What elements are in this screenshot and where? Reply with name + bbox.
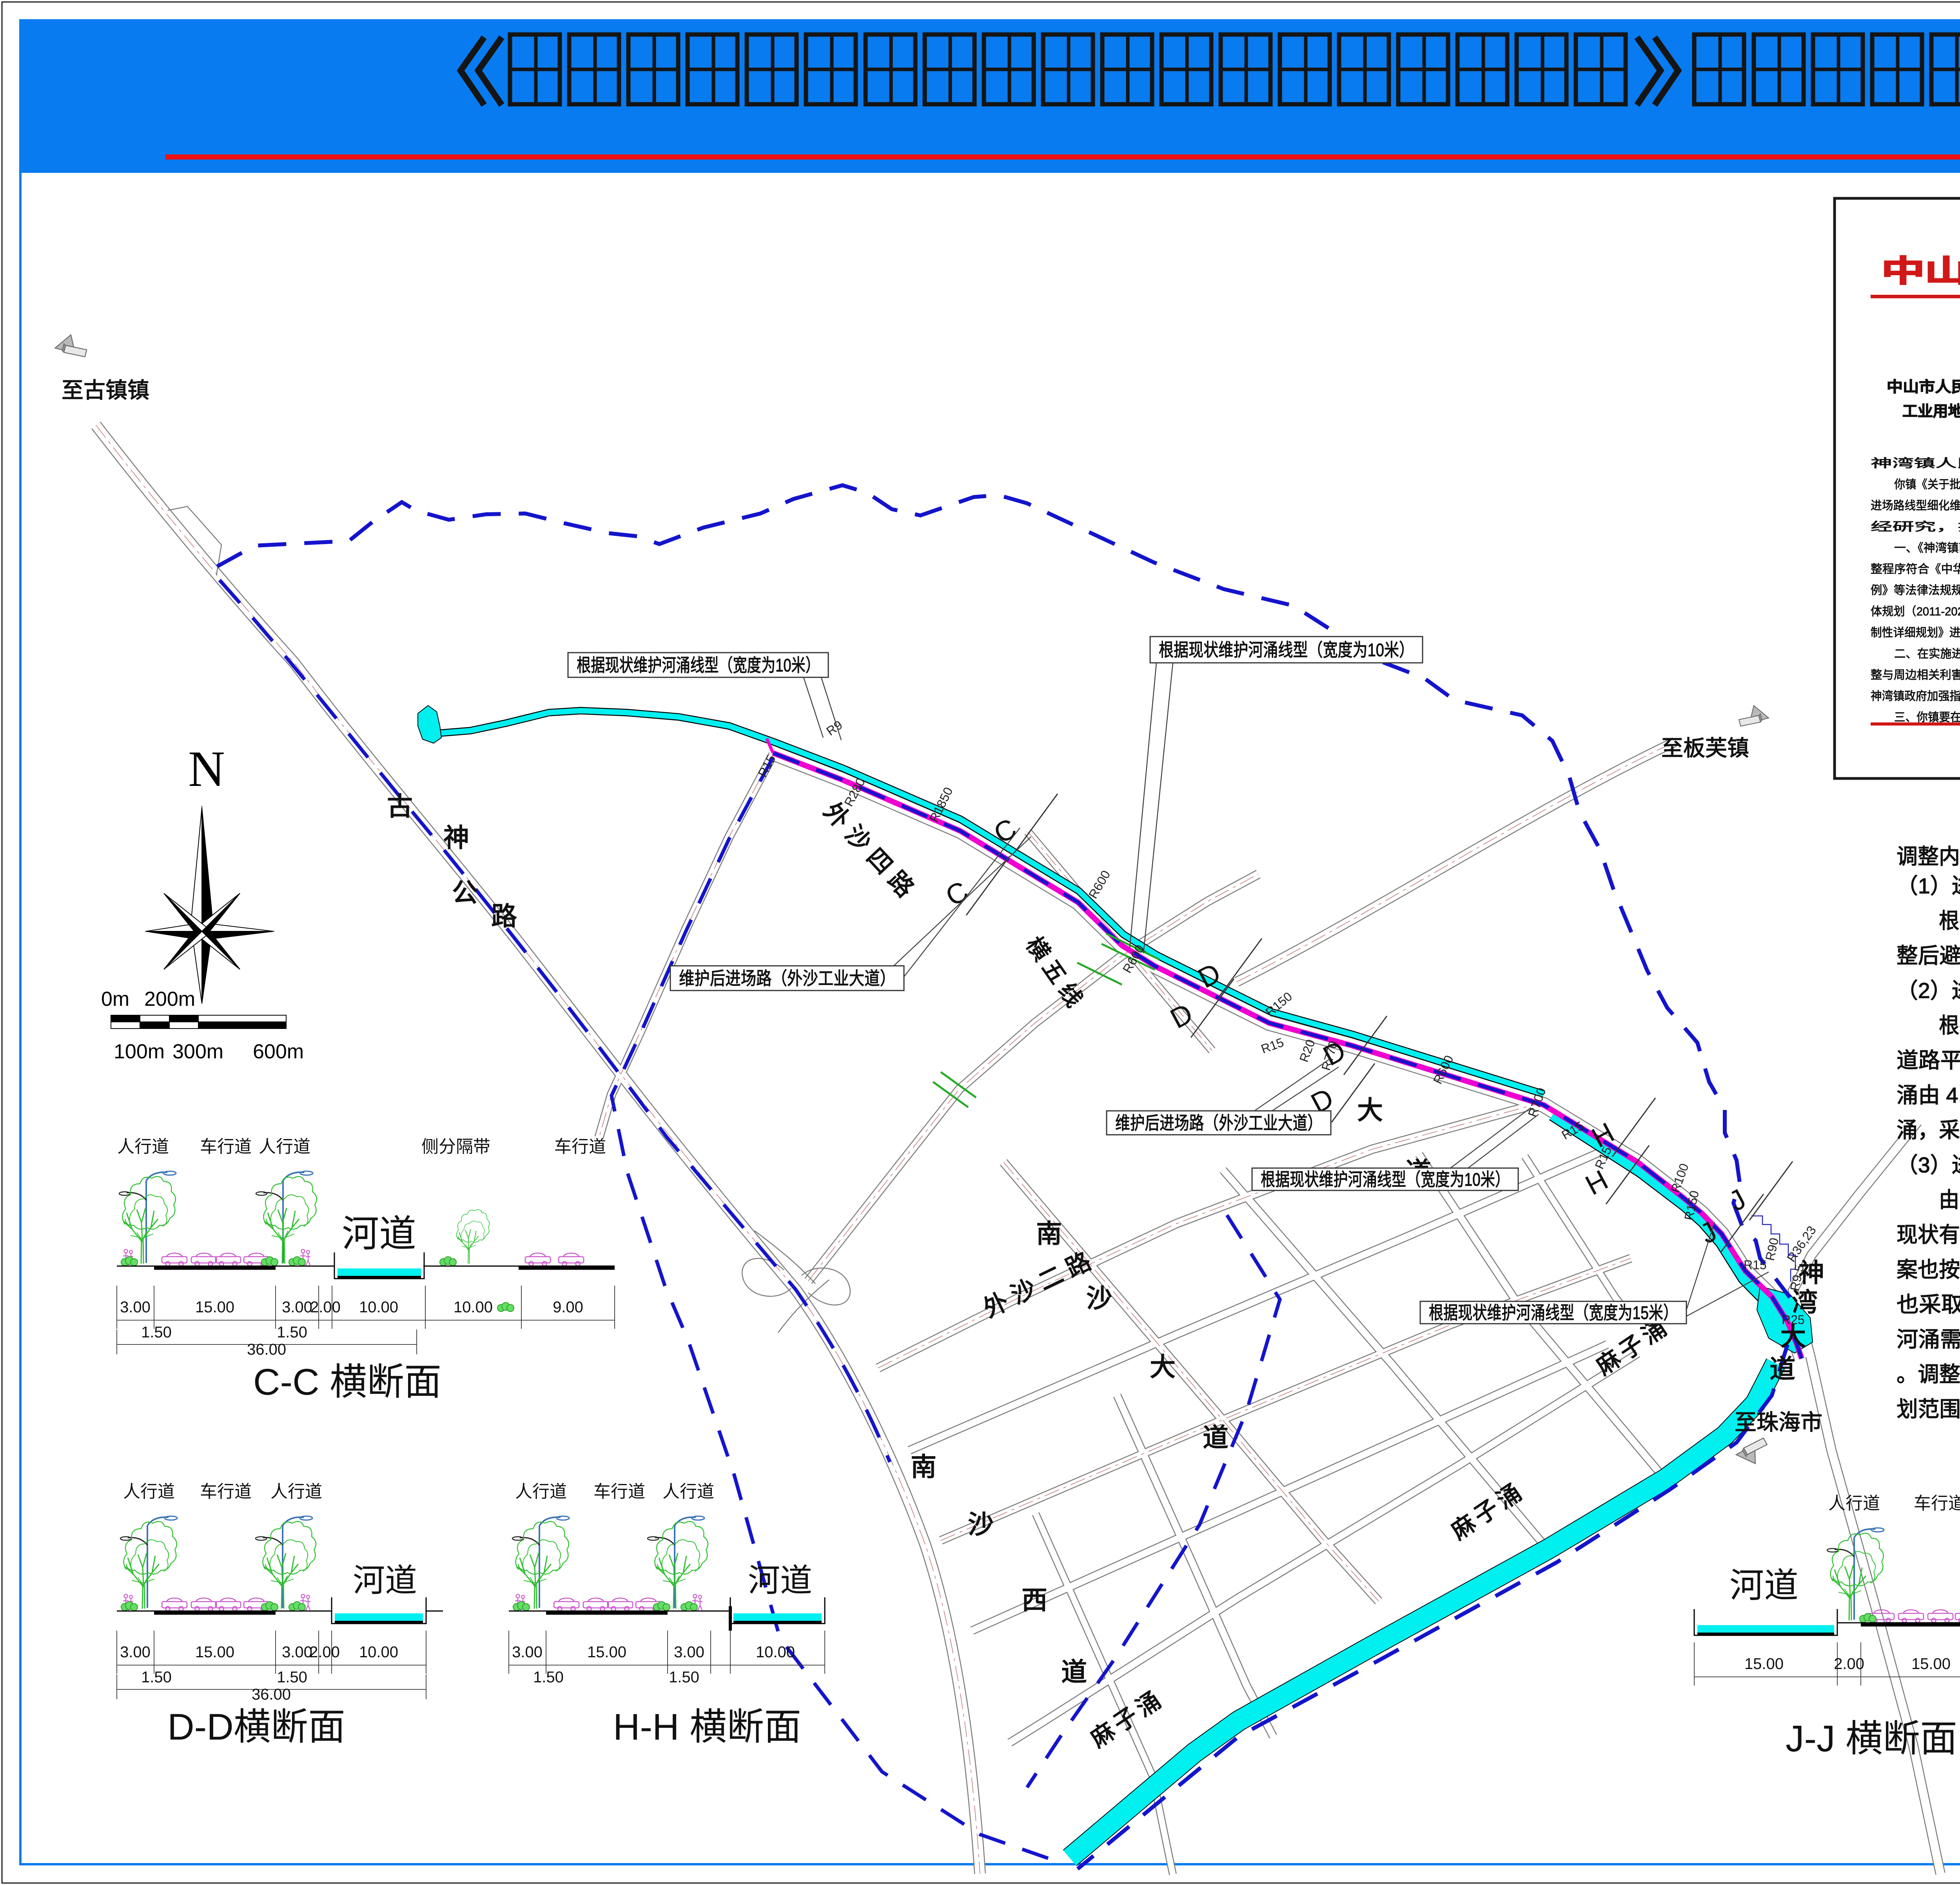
- svg-text:神湾镇人民政府：: 神湾镇人民政府：: [1871, 457, 1960, 470]
- svg-text:人行道: 人行道: [270, 1482, 322, 1501]
- svg-text:（3）进场路（外沙工业大道）沿线河涌线位调整: （3）进场路（外沙工业大道）沿线河涌线位调整: [1896, 1153, 1960, 1177]
- svg-text:道: 道: [1061, 1657, 1087, 1686]
- svg-text:整与周边相关利害关系人用地开发的关系。市自然资源局应会同: 整与周边相关利害关系人用地开发的关系。市自然资源局应会同: [1871, 669, 1960, 682]
- svg-text:根据已征收土地及现状土地情况，调整进场路（外沙工业大道）道路: 根据已征收土地及现状土地情况，调整进场路（外沙工业大道）道路线位，调: [1939, 909, 1960, 933]
- svg-text:0m: 0m: [101, 988, 129, 1011]
- svg-text:15.00: 15.00: [195, 1299, 234, 1316]
- svg-text:神: 神: [443, 823, 469, 852]
- svg-text:沙: 沙: [968, 1510, 994, 1539]
- svg-text:9.00: 9.00: [553, 1299, 583, 1316]
- svg-text:车行道: 车行道: [200, 1137, 252, 1156]
- svg-text:1.50: 1.50: [141, 1669, 172, 1686]
- svg-text:西: 西: [1022, 1586, 1047, 1615]
- svg-text:制性详细规划》进场路线行走向微调成果。: 制性详细规划》进场路线行走向微调成果。: [1871, 626, 1960, 639]
- svg-text:R25: R25: [1782, 1313, 1805, 1327]
- svg-text:根据现状维护河涌线型（宽度为15米）: 根据现状维护河涌线型（宽度为15米）: [1429, 1303, 1678, 1323]
- svg-text:3.00: 3.00: [120, 1644, 151, 1661]
- svg-text:现状有较大的出入，现阶段神湾镇已对该区域进行精准的测量，进场: 现状有较大的出入，现阶段神湾镇已对该区域进行精准的测量，进场路的施工方: [1896, 1223, 1960, 1247]
- svg-text:河道: 河道: [1730, 1566, 1798, 1605]
- svg-text:河道: 河道: [342, 1213, 416, 1255]
- svg-text:河涌需控制宽度为 10 米，局部段为 15米，本次维护后保证: 河涌需控制宽度为 10 米，局部段为 15米，本次维护后保证了水域宽度的要求: [1896, 1327, 1960, 1352]
- svg-text:河道: 河道: [748, 1563, 812, 1598]
- svg-text:二、在实施进场路线行调整过程，应妥善处理好支路走向调: 二、在实施进场路线行调整过程，应妥善处理好支路走向调: [1894, 648, 1960, 660]
- svg-text:人行道: 人行道: [1828, 1494, 1880, 1513]
- svg-text:涌由 4.5 米调整为 2 米，能满足人行道基本的要求。H: 涌由 4.5 米调整为 2 米，能满足人行道基本的要求。H 断面东侧完善后紧挨河: [1896, 1083, 1960, 1107]
- svg-text:中山市人民政府关于《中山市神湾镇南沙: 中山市人民政府关于《中山市神湾镇南沙: [1887, 379, 1960, 396]
- svg-text:根据现状维护河涌线型（宽度为10米）: 根据现状维护河涌线型（宽度为10米）: [577, 655, 820, 675]
- svg-text:维护后进场路（外沙工业大道）: 维护后进场路（外沙工业大道）: [1115, 1113, 1322, 1133]
- svg-text:1.50: 1.50: [141, 1324, 172, 1341]
- svg-text:300m: 300m: [172, 1040, 223, 1063]
- svg-text:15.00: 15.00: [195, 1644, 234, 1661]
- svg-text:维护后进场路（外沙工业大道）: 维护后进场路（外沙工业大道）: [679, 968, 895, 989]
- svg-text:（1）进场路（外沙工业大道）线位调整: （1）进场路（外沙工业大道）线位调整: [1896, 874, 1960, 898]
- svg-text:至珠海市: 至珠海市: [1735, 1410, 1822, 1435]
- svg-text:600m: 600m: [253, 1040, 304, 1063]
- svg-text:大: 大: [1357, 1096, 1383, 1125]
- svg-text:3.00: 3.00: [282, 1299, 312, 1316]
- svg-text:三、你镇要在上述地块规划条件调整成果获批之日起 20 个工: 三、你镇要在上述地块规划条件调整成果获批之日起 20 个工: [1894, 711, 1960, 724]
- svg-text:人行道: 人行道: [123, 1482, 175, 1501]
- svg-text:车行道: 车行道: [200, 1482, 252, 1501]
- svg-text:2.00: 2.00: [309, 1644, 340, 1661]
- svg-text:人行道: 人行道: [259, 1137, 310, 1156]
- svg-text:中山市人民政府: 中山市人民政府: [1882, 255, 1960, 288]
- svg-text:经研究，批复如下：: 经研究，批复如下：: [1871, 521, 1960, 533]
- svg-text:15.00: 15.00: [587, 1644, 626, 1661]
- svg-text:你镇《关于批准实施〈神湾镇南沙工业用地控制性详细规划〉: 你镇《关于批准实施〈神湾镇南沙工业用地控制性详细规划〉: [1894, 478, 1960, 491]
- svg-text:车行道: 车行道: [1914, 1494, 1960, 1513]
- svg-text:至板芙镇: 至板芙镇: [1661, 736, 1749, 760]
- svg-text:河道: 河道: [353, 1563, 417, 1598]
- svg-text:南: 南: [911, 1452, 936, 1481]
- svg-text:整后避免大量占用已出让用地的情况，道路实施性更强，详见左图：: 整后避免大量占用已出让用地的情况，道路实施性更强，详见左图：: [1896, 943, 1960, 968]
- svg-text:R15: R15: [1744, 1258, 1767, 1272]
- svg-text:南: 南: [1036, 1219, 1062, 1248]
- svg-text:1.50: 1.50: [277, 1324, 307, 1341]
- svg-text:2.00: 2.00: [1834, 1655, 1864, 1673]
- svg-text:整程序符合《中华人民共和国城乡规划法》《广东省城乡规划条: 整程序符合《中华人民共和国城乡规划法》《广东省城乡规划条: [1871, 563, 1960, 576]
- svg-text:200m: 200m: [144, 988, 195, 1011]
- svg-text:神湾镇政府加强指导监督。: 神湾镇政府加强指导监督。: [1871, 690, 1960, 703]
- svg-text:（2）进场路（外沙工业大道）道路断面调整: （2）进场路（外沙工业大道）道路断面调整: [1896, 978, 1960, 1003]
- svg-text:调整内容：: 调整内容：: [1896, 844, 1960, 869]
- svg-text:根据现状维护河涌线型（宽度为10米）: 根据现状维护河涌线型（宽度为10米）: [1261, 1169, 1510, 1190]
- svg-text:车行道: 车行道: [554, 1137, 606, 1156]
- svg-text:根据进场路（外沙工业大道）施工方案完善南段道路的道路断面（详: 根据进场路（外沙工业大道）施工方案完善南段道路的道路断面（详见维护后: [1939, 1013, 1960, 1038]
- svg-text:人行道: 人行道: [117, 1137, 169, 1156]
- svg-text:侧分隔带: 侧分隔带: [421, 1137, 490, 1156]
- svg-text:3.00: 3.00: [674, 1644, 704, 1661]
- svg-text:大: 大: [1150, 1352, 1176, 1381]
- svg-text:也采取挡土墙的技术处理。根据《中山市市域蓝线规划（2016－: 也采取挡土墙的技术处理。根据《中山市市域蓝线规划（2016－2030 年》，: [1896, 1292, 1960, 1317]
- svg-text:工业用地控制性详细规划》进场路线行: 工业用地控制性详细规划》进场路线行: [1902, 403, 1960, 420]
- svg-text:一、《神湾镇南沙工业用地控制性详细规划》进场路线行调: 一、《神湾镇南沙工业用地控制性详细规划》进场路线行调: [1894, 542, 1960, 555]
- svg-text:公: 公: [452, 878, 478, 907]
- svg-text:由于已批控规编制时缺乏一定精度的地形图，导致了已批控规中的河: 由于已批控规编制时缺乏一定精度的地形图，导致了已批控规中的河涌线位不: [1939, 1188, 1960, 1212]
- svg-text:1.50: 1.50: [533, 1669, 564, 1686]
- svg-text:路: 路: [491, 902, 517, 931]
- svg-text:至古镇镇: 至古镇镇: [62, 378, 149, 403]
- svg-text:体规划（2011-2020）》要求，原则同意《神湾镇南沙工业: 体规划（2011-2020）》要求，原则同意《神湾镇南沙工业用地控: [1871, 605, 1960, 618]
- svg-text:J-J 横断面: J-J 横断面: [1786, 1718, 1957, 1760]
- svg-text:进场路线型细化维护成果的请示》（神湾府〔2020〕1 号）收: 进场路线型细化维护成果的请示》（神湾府〔2020〕1 号）收悉。: [1871, 499, 1960, 512]
- svg-text:。调整前南沙工业用地规划范围内水域面积为 15.12公顷，整: 。调整前南沙工业用地规划范围内水域面积为 15.12公顷，整前后沙工业用地规: [1896, 1362, 1960, 1386]
- svg-text:车行道: 车行道: [593, 1482, 645, 1501]
- svg-text:道路平面规划图中的 H 断面和 J 断面），完善后 J 断面: 道路平面规划图中的 H 断面和 J 断面），完善后 J 断面西侧人行道避免上盖河: [1896, 1048, 1960, 1072]
- svg-text:10.00: 10.00: [454, 1299, 493, 1316]
- svg-text:10.00: 10.00: [756, 1644, 795, 1661]
- svg-text:案也按现状情况进行完善。完善后施工方案不存在占用现在河涌的情: 案也按现状情况进行完善。完善后施工方案不存在占用现在河涌的情况，临涌段: [1896, 1257, 1960, 1282]
- svg-text:N: N: [188, 741, 225, 797]
- svg-text:湾: 湾: [1792, 1288, 1818, 1317]
- svg-text:1.50: 1.50: [277, 1669, 307, 1686]
- svg-text:10.00: 10.00: [359, 1644, 398, 1661]
- svg-text:H-H 横断面: H-H 横断面: [613, 1706, 801, 1748]
- svg-text:3.00: 3.00: [120, 1299, 151, 1316]
- svg-text:人行道: 人行道: [662, 1482, 714, 1501]
- svg-text:根据现状维护河涌线型（宽度为10米）: 根据现状维护河涌线型（宽度为10米）: [1159, 640, 1414, 660]
- svg-text:道: 道: [1203, 1423, 1229, 1452]
- svg-text:15.00: 15.00: [1911, 1655, 1951, 1673]
- svg-text:人行道: 人行道: [515, 1482, 567, 1501]
- svg-text:2.00: 2.00: [310, 1299, 341, 1316]
- svg-text:15.00: 15.00: [1744, 1655, 1784, 1673]
- svg-text:100m: 100m: [114, 1040, 165, 1063]
- svg-text:10.00: 10.00: [359, 1299, 398, 1316]
- svg-text:36.00: 36.00: [252, 1686, 291, 1703]
- svg-text:D-D横断面: D-D横断面: [167, 1706, 345, 1748]
- svg-text:道: 道: [1769, 1354, 1795, 1383]
- svg-text:沙: 沙: [1086, 1284, 1112, 1313]
- svg-text:3.00: 3.00: [282, 1644, 312, 1661]
- svg-text:36.00: 36.00: [247, 1341, 286, 1358]
- svg-text:古: 古: [387, 792, 413, 821]
- svg-text:划范围内水域面积为 15.12 公顷，符合已批控规的水域面积: 划范围内水域面积为 15.12 公顷，符合已批控规的水域面积要求。详见左图：: [1896, 1397, 1960, 1421]
- svg-text:涌，采取护栏等防护措施。详见左图：: 涌，采取护栏等防护措施。详见左图：: [1896, 1118, 1960, 1142]
- svg-text:3.00: 3.00: [512, 1644, 543, 1661]
- svg-text:1.50: 1.50: [669, 1669, 699, 1686]
- svg-text:例》等法律法规规定的相关要求，调整成果符合《中山市城市总: 例》等法律法规规定的相关要求，调整成果符合《中山市城市总: [1871, 584, 1960, 597]
- svg-text:C-C 横断面: C-C 横断面: [253, 1361, 441, 1403]
